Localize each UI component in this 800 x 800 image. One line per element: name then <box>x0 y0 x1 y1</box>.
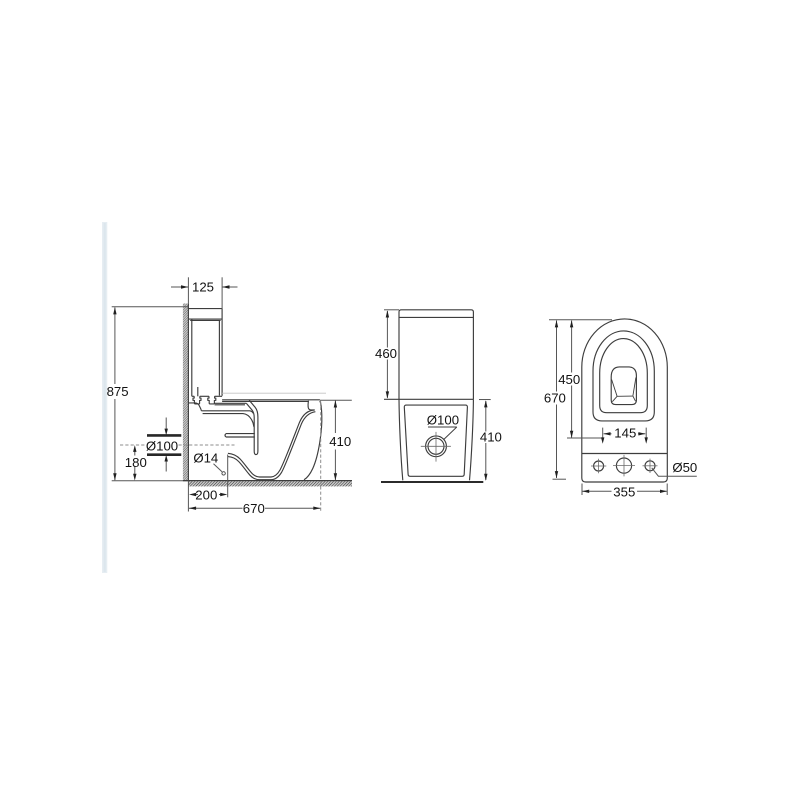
svg-text:145: 145 <box>614 426 636 441</box>
svg-text:460: 460 <box>375 346 397 361</box>
svg-text:180: 180 <box>125 455 147 470</box>
svg-text:125: 125 <box>192 280 214 295</box>
svg-text:Ø50: Ø50 <box>672 460 697 475</box>
svg-text:355: 355 <box>613 484 635 499</box>
svg-text:Ø100: Ø100 <box>427 412 459 427</box>
svg-text:Ø100: Ø100 <box>146 439 178 454</box>
svg-text:410: 410 <box>329 434 351 449</box>
svg-text:200: 200 <box>195 487 217 502</box>
svg-text:670: 670 <box>243 501 265 516</box>
svg-text:410: 410 <box>480 430 502 445</box>
svg-text:Ø14: Ø14 <box>193 450 218 465</box>
svg-text:450: 450 <box>558 372 580 387</box>
svg-text:670: 670 <box>544 391 566 406</box>
svg-text:875: 875 <box>107 384 129 399</box>
